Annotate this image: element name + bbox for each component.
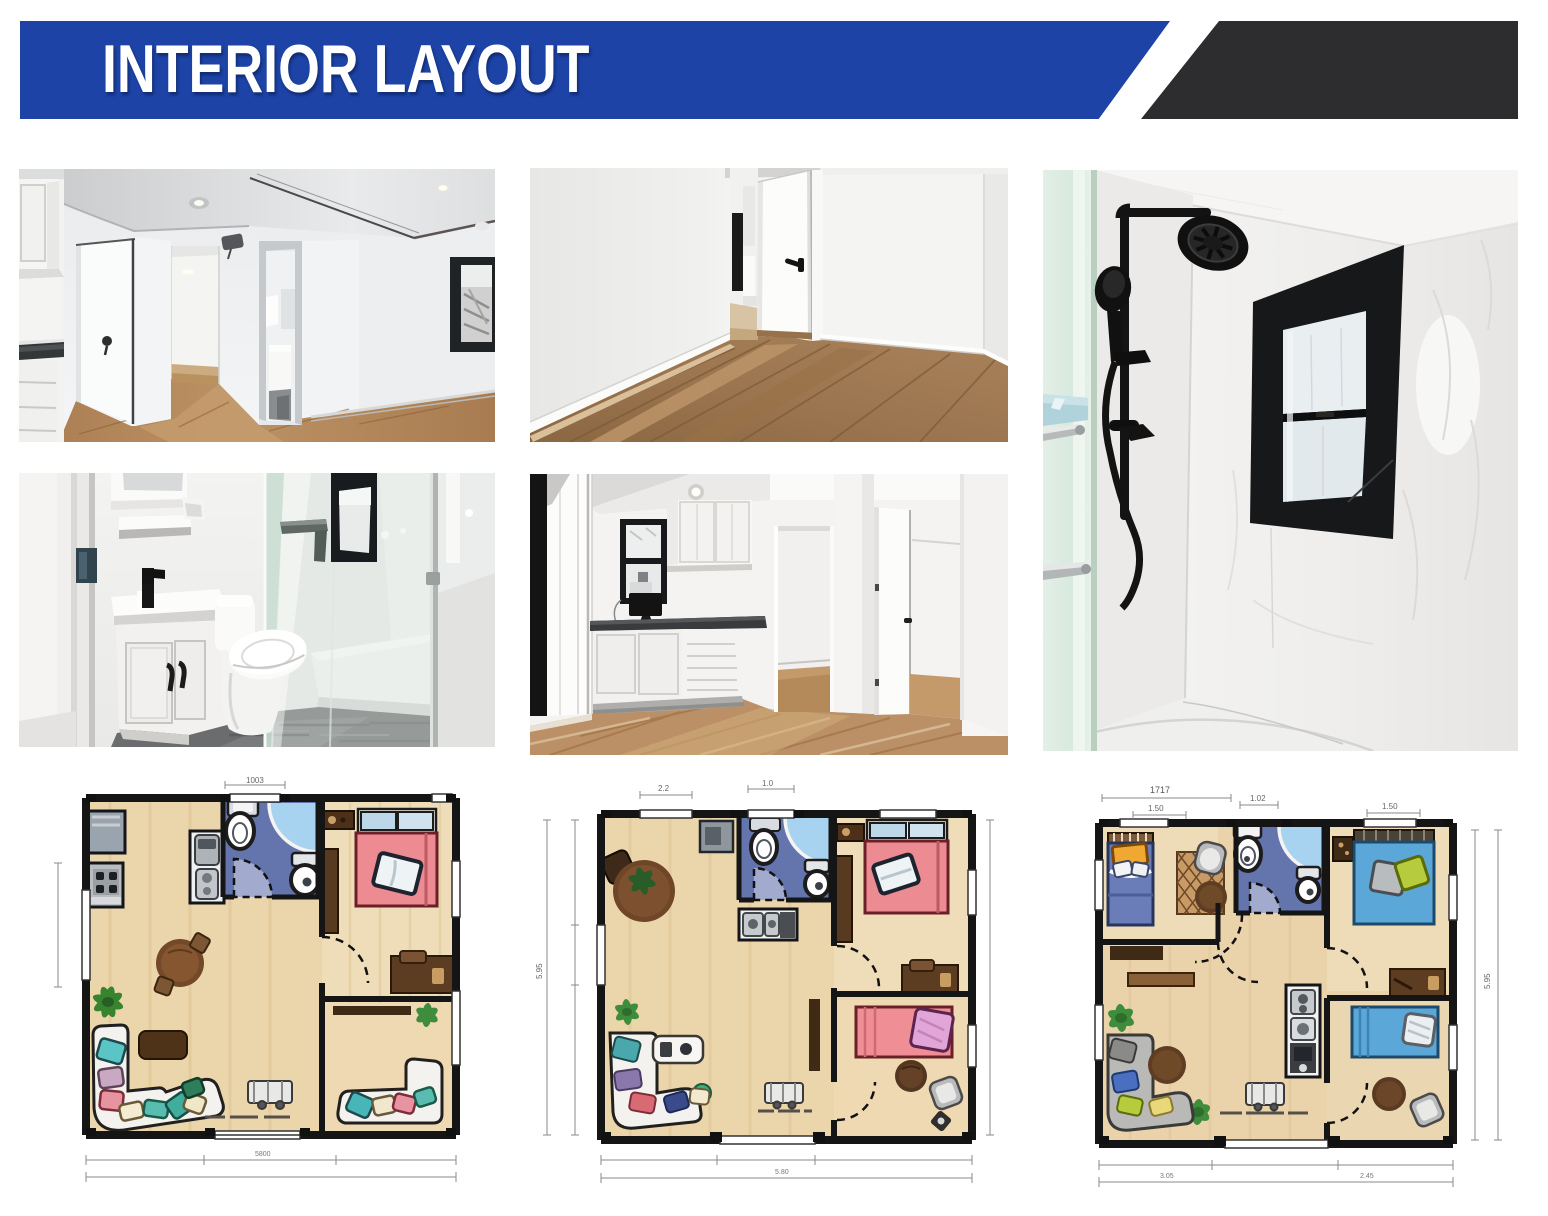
svg-text:1003: 1003 [246,776,264,785]
svg-text:2.2: 2.2 [658,784,670,793]
svg-text:5.95: 5.95 [535,963,544,979]
svg-text:1.0: 1.0 [762,779,774,788]
svg-text:5800: 5800 [255,1151,271,1158]
svg-text:1.02: 1.02 [1250,794,1266,803]
svg-text:3.05: 3.05 [1160,1173,1174,1180]
svg-text:5.80: 5.80 [775,1169,789,1176]
svg-text:1.50: 1.50 [1382,802,1398,811]
svg-text:5.95: 5.95 [1483,973,1492,989]
svg-text:1717: 1717 [1150,785,1170,795]
svg-text:2.45: 2.45 [1360,1173,1374,1180]
svg-text:1.50: 1.50 [1148,804,1164,813]
